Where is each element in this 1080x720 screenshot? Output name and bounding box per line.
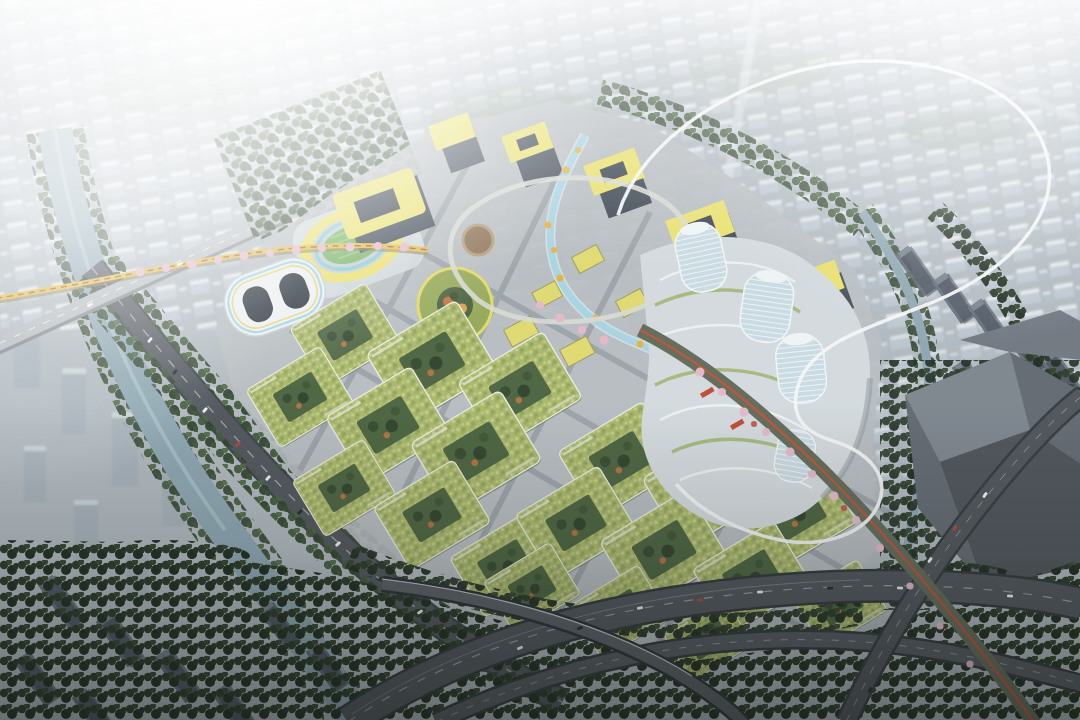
aerial-render-image bbox=[0, 0, 1080, 720]
white-film bbox=[0, 0, 1080, 720]
masterplan-scene bbox=[0, 0, 1080, 720]
